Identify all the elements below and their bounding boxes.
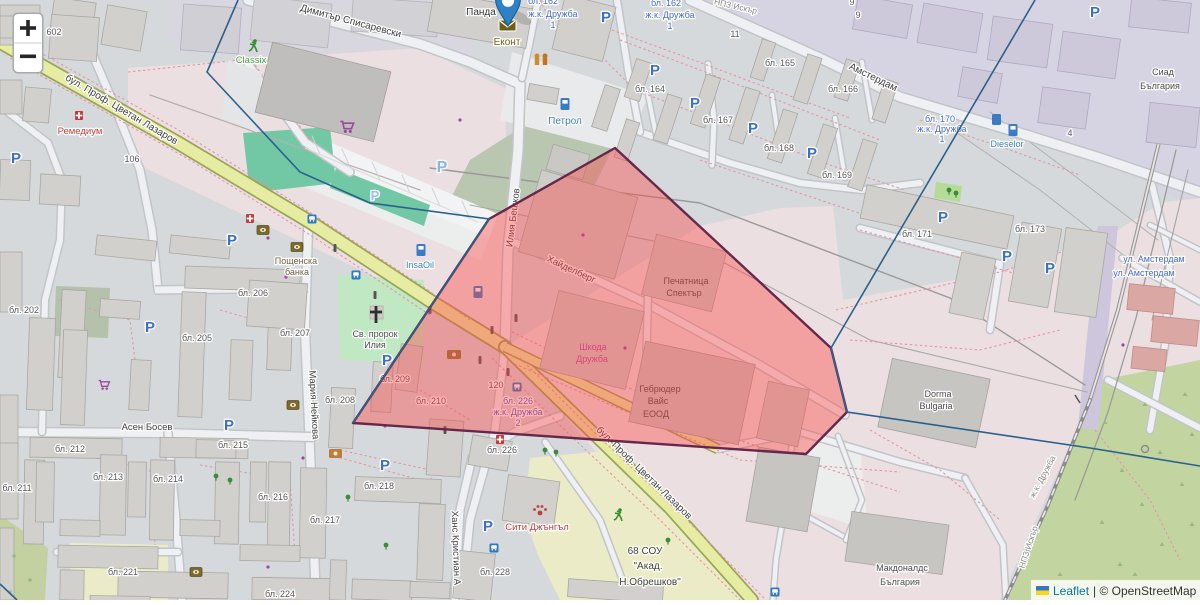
svg-text:ул. Амстердам: ул. Амстердам xyxy=(1123,254,1185,264)
svg-text:бл. 171: бл. 171 xyxy=(902,229,932,239)
svg-text:бл. 162: бл. 162 xyxy=(651,0,681,8)
svg-text:68 СОУ: 68 СОУ xyxy=(628,546,663,557)
svg-text:Асен Босев: Асен Босев xyxy=(122,422,173,433)
svg-text:Н.Обрешков": Н.Обрешков" xyxy=(619,576,681,588)
svg-text:бл. 216: бл. 216 xyxy=(258,492,288,502)
svg-text:бл. 207: бл. 207 xyxy=(280,328,310,338)
svg-text:бл. 162: бл. 162 xyxy=(528,0,558,6)
svg-text:Classix: Classix xyxy=(236,55,267,66)
svg-text:| © OpenStreetMap: | © OpenStreetMap xyxy=(1093,584,1197,598)
svg-text:P: P xyxy=(748,120,758,137)
svg-text:P: P xyxy=(1090,4,1100,21)
svg-text:бл. 168: бл. 168 xyxy=(764,143,794,153)
svg-text:1: 1 xyxy=(939,134,944,144)
svg-text:бл. 214: бл. 214 xyxy=(153,474,183,484)
svg-text:бл. 217: бл. 217 xyxy=(310,515,340,525)
svg-text:P: P xyxy=(224,417,234,434)
svg-text:бл. 213: бл. 213 xyxy=(93,472,123,482)
svg-text:бл. 165: бл. 165 xyxy=(765,58,795,68)
svg-text:4: 4 xyxy=(1067,128,1072,138)
svg-text:бл. 224: бл. 224 xyxy=(265,589,295,599)
svg-text:602: 602 xyxy=(46,27,61,37)
svg-text:P: P xyxy=(371,188,380,203)
svg-text:бл. 211: бл. 211 xyxy=(2,483,31,493)
svg-text:P: P xyxy=(11,150,21,167)
svg-text:бл. 170: бл. 170 xyxy=(925,114,955,124)
svg-text:ул. Амстердам: ул. Амстердам xyxy=(1113,268,1175,278)
svg-text:P: P xyxy=(938,209,948,226)
svg-text:бл. 218: бл. 218 xyxy=(364,481,394,491)
svg-text:Илия: Илия xyxy=(364,340,386,350)
svg-text:Петрол: Петрол xyxy=(548,116,582,127)
svg-text:106: 106 xyxy=(124,154,139,164)
svg-text:P: P xyxy=(601,9,611,26)
svg-text:Еконт: Еконт xyxy=(494,37,521,48)
svg-text:бл. 206: бл. 206 xyxy=(238,288,268,298)
svg-text:P: P xyxy=(807,145,817,162)
svg-text:България: България xyxy=(1140,81,1180,91)
svg-text:бл. 228: бл. 228 xyxy=(480,567,510,577)
svg-text:1: 1 xyxy=(667,21,672,31)
svg-text:бл. 173: бл. 173 xyxy=(1015,224,1045,234)
svg-text:P: P xyxy=(690,95,700,112)
svg-text:P: P xyxy=(483,518,493,535)
svg-text:бл. 169: бл. 169 xyxy=(822,170,852,180)
svg-text:P: P xyxy=(437,159,448,176)
svg-text:Dieselor: Dieselor xyxy=(990,139,1023,149)
svg-text:Dorma: Dorma xyxy=(924,389,951,399)
svg-text:България: България xyxy=(880,577,920,587)
svg-text:ж.к. Дружба: ж.к. Дружба xyxy=(528,9,577,19)
svg-text:P: P xyxy=(650,62,660,79)
svg-text:Макдоналдс: Макдоналдс xyxy=(876,563,928,573)
svg-text:"Акад.: "Акад. xyxy=(634,561,663,572)
svg-text:Панда: Панда xyxy=(466,7,496,18)
svg-text:Leaflet: Leaflet xyxy=(1053,584,1090,598)
svg-text:1: 1 xyxy=(550,20,555,30)
svg-text:Ремедиум: Ремедиум xyxy=(58,126,103,137)
svg-text:P: P xyxy=(380,457,390,474)
svg-text:Сиад: Сиад xyxy=(1152,67,1175,77)
svg-text:9: 9 xyxy=(849,0,854,7)
svg-text:бл. 208: бл. 208 xyxy=(325,395,355,405)
svg-text:бл. 212: бл. 212 xyxy=(55,444,85,454)
svg-text:InsaOil: InsaOil xyxy=(406,260,434,270)
svg-text:Bulgaria: Bulgaria xyxy=(919,401,952,411)
svg-text:бл. 166: бл. 166 xyxy=(828,84,858,94)
svg-text:P: P xyxy=(1002,248,1012,265)
svg-text:Св. пророк: Св. пророк xyxy=(352,329,397,339)
svg-text:бл. 202: бл. 202 xyxy=(9,305,39,315)
svg-text:ж.к. Дружба: ж.к. Дружба xyxy=(645,10,694,20)
svg-text:P: P xyxy=(227,232,237,249)
svg-text:9: 9 xyxy=(855,10,860,20)
svg-text:11: 11 xyxy=(730,29,739,39)
svg-text:бл. 205: бл. 205 xyxy=(182,333,212,343)
svg-text:бл. 164: бл. 164 xyxy=(635,84,665,94)
svg-text:P: P xyxy=(1045,260,1055,277)
svg-text:P: P xyxy=(145,319,155,336)
svg-text:бл. 167: бл. 167 xyxy=(703,115,733,125)
svg-text:банка: банка xyxy=(285,267,309,277)
svg-text:бл. 226: бл. 226 xyxy=(487,445,517,455)
svg-text:Пощенска: Пощенска xyxy=(275,256,317,266)
svg-text:Сити Джънгъл: Сити Джънгъл xyxy=(505,522,569,533)
svg-text:бл. 221: бл. 221 xyxy=(108,567,138,577)
svg-text:бл. 215: бл. 215 xyxy=(218,440,248,450)
